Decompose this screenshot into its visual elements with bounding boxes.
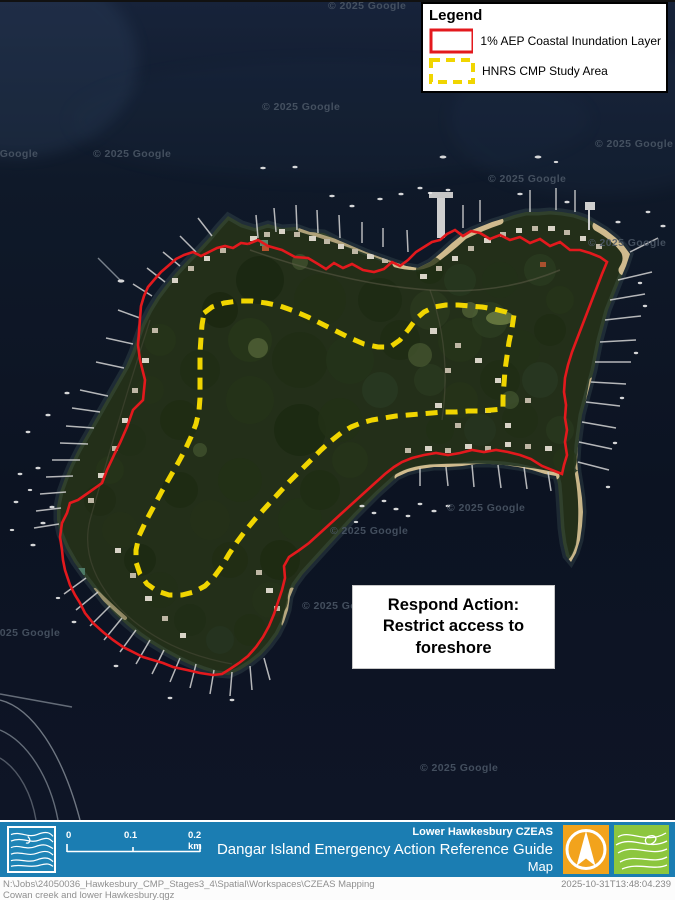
watermark-text: © 2025 Google — [93, 148, 171, 160]
watermark-text: © 2025 Google — [488, 173, 566, 185]
watermark-text: © 2025 Google — [262, 101, 340, 113]
region-label: Lower Hawkesbury CZEAS — [217, 825, 553, 840]
north-arrow-logo — [563, 825, 609, 874]
watermark-text: © 2025 Google — [0, 148, 38, 160]
map-title-block: Lower Hawkesbury CZEAS Dangar Island Eme… — [217, 825, 553, 875]
watermark-text: © 2025 Google — [420, 762, 498, 774]
respond-line-3: foreshore — [415, 638, 491, 659]
contour-logo-green — [614, 825, 669, 874]
flow-lines-icon — [614, 825, 669, 874]
contour-lines-icon — [9, 828, 54, 871]
scale-bar-line — [62, 843, 207, 855]
respond-line-1: Respond Action: — [388, 595, 519, 616]
credits-strip: N:\Jobs\24050036_Hawkesbury_CMP_Stages3_… — [0, 877, 675, 900]
watermark-text: © 2025 Google — [588, 237, 666, 249]
watermark-text: © 2025 Google — [447, 502, 525, 514]
scale-tick-0: 0 — [66, 830, 71, 841]
satellite-imagery: © 2025 Google © 2025 Google © 2025 Googl… — [0, 0, 675, 820]
watermark-text: © 2025 Google — [330, 525, 408, 537]
contour-logo-blue — [7, 826, 56, 873]
map-title: Dangar Island Emergency Action Reference… — [217, 840, 553, 859]
legend: Legend 1% AEP Coastal Inundation Layer H… — [421, 2, 668, 93]
legend-title: Legend — [429, 7, 661, 24]
yellow-dashed-swatch — [429, 58, 475, 84]
respond-action-box: Respond Action: Restrict access to fores… — [352, 585, 555, 669]
scale-tick-01: 0.1 — [124, 830, 137, 841]
legend-item-label: 1% AEP Coastal Inundation Layer — [480, 34, 661, 48]
respond-line-2: Restrict access to — [383, 616, 524, 637]
map-subtitle: Map — [217, 859, 553, 875]
watermark-text: © 2025 Google — [328, 0, 406, 12]
map-page: © 2025 Google © 2025 Google © 2025 Googl… — [0, 0, 675, 900]
export-timestamp: 2025-10-31T13:48:04.239 — [561, 879, 671, 890]
legend-item-study-area: HNRS CMP Study Area — [429, 58, 661, 84]
red-outline-swatch — [429, 28, 473, 54]
watermark-text: © 2025 Google — [0, 627, 60, 639]
north-arrow-icon — [563, 825, 609, 874]
legend-item-inundation: 1% AEP Coastal Inundation Layer — [429, 28, 661, 54]
legend-item-label: HNRS CMP Study Area — [482, 64, 608, 78]
project-file-path: N:\Jobs\24050036_Hawkesbury_CMP_Stages3_… — [3, 879, 375, 890]
watermark-text: © 2025 Google — [595, 138, 673, 150]
map-canvas: © 2025 Google © 2025 Google © 2025 Googl… — [0, 0, 675, 820]
footer-bar: 0 0.1 0.2 km Lower Hawkesbury CZEAS Dang… — [0, 822, 675, 877]
scale-bar: 0 0.1 0.2 km — [62, 830, 212, 860]
project-name: Cowan creek and lower Hawkesbury.qgz — [3, 890, 174, 900]
